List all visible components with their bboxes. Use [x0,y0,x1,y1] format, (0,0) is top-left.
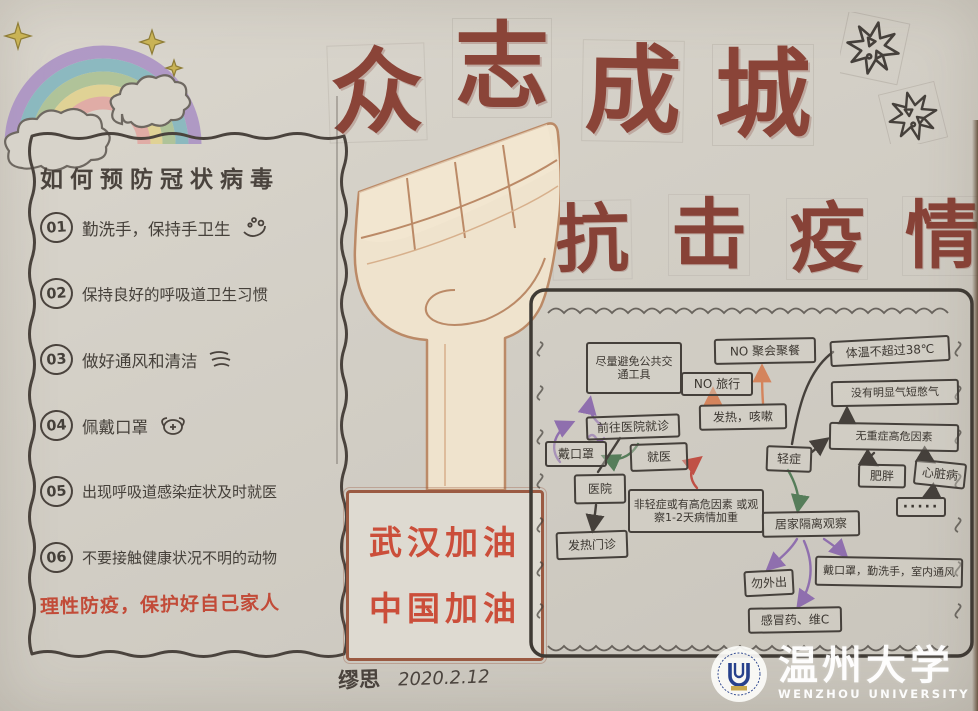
flow-node-avoid-public-transport: 尽量避免公共交通工具 [586,342,682,394]
wavy-border [24,128,352,662]
flow-node-home-isolation: 居家隔离观察 [762,510,860,538]
flow-node-no-going-out: 勿外出 [743,569,794,598]
subtitle-char: 情 [902,196,978,276]
item-number: 01 [39,211,74,244]
pencil-guide-line [336,96,338,464]
flow-node-mask-wash-ventilate: 戴口罩，勤洗手，室内通风 [815,556,964,589]
flow-node-obesity: 肥胖 [858,464,906,489]
prevention-note: 理性防疫，保护好自己家人 [40,588,280,619]
cheer-line: 武汉加油 [369,526,521,559]
watermark-name-en: WENZHOU UNIVERSITY [778,689,970,701]
item-text: 出现呼吸道感染症状及时就医 [82,481,277,502]
item-number: 05 [39,475,74,508]
wind-icon [207,349,235,371]
flow-node-ellipsis: ····· [896,497,946,517]
signature-date: 2020.2.12 [398,666,490,690]
prevention-item: 04 佩戴口罩 [40,410,340,441]
flow-node-seek-medical-care: 就医 [630,442,689,472]
flow-node-no-gathering: NO 聚会聚餐 [714,337,816,365]
virus-burst-icon [840,12,952,144]
item-text: 保持良好的呼吸道卫生习惯 [82,283,268,305]
flow-node-mild-case: 轻症 [766,445,813,473]
cheer-line: 中国加油 [369,592,521,625]
title-char: 成 [581,39,685,143]
flow-node-fever-clinic: 发热门诊 [556,530,629,560]
subtitle-char: 击 [668,194,750,276]
flow-node-fever-cough: 发热，咳嗽 [699,403,787,431]
subtitle-char: 疫 [786,198,868,280]
item-number: 03 [39,343,74,376]
cheer-box: 武汉加油 中国加油 [346,490,544,661]
flow-node-no-shortness-of-breath: 没有明显气短憋气 [831,379,959,407]
item-text: 勤洗手，保持手卫生 [82,216,231,240]
signature-author: 缪思 [338,663,381,694]
prevention-item: 06 不要接触健康状况不明的动物 [40,542,340,573]
photo-edge-shadow [972,120,978,711]
prevention-item: 03 做好通风和清洁 [40,344,340,375]
scallop-decoration [548,309,948,314]
flow-node-hospital: 医院 [574,474,627,505]
item-number: 02 [39,277,74,310]
signature: 缪思 2020.2.12 [338,659,491,694]
item-number: 06 [39,541,74,574]
subtitle-char: 抗 [551,199,632,280]
item-number: 04 [39,409,74,442]
flow-node-no-severe-risk-factor: 无重症高危因素 [829,422,959,452]
prevention-title: 如何预防冠状病毒 [40,160,280,194]
flow-node-cold-medicine: 感冒药、维C [748,606,842,634]
prevention-panel: 如何预防冠状病毒 01 勤洗手，保持手卫生 02 保持良好的呼吸道卫生习惯 03… [24,128,352,662]
item-text: 做好通风和清洁 [82,348,198,372]
flow-node-go-to-hospital: 前往医院就诊 [586,413,681,440]
seal-logo [708,643,770,705]
prevention-item: 05 出现呼吸道感染症状及时就医 [40,476,340,507]
flow-node-no-travel: NO 旅行 [681,372,753,396]
flow-node-not-mild-or-risk: 非轻症或有高危因素 或观察1-2天病情加重 [628,489,764,533]
flow-node-wear-mask: 戴口罩 [545,441,607,467]
prevention-item: 01 勤洗手，保持手卫生 [40,212,340,243]
mask-icon [157,414,189,438]
handwash-icon [240,216,270,240]
university-watermark: 温州大学 WENZHOU UNIVERSITY [708,636,978,711]
prevention-item: 02 保持良好的呼吸道卫生习惯 [40,278,340,309]
item-text: 不要接触健康状况不明的动物 [82,547,277,568]
item-text: 佩戴口罩 [82,414,148,438]
title-char: 城 [712,44,814,146]
flow-node-heart-disease: 心脏病 [913,458,967,489]
watermark-name-cn: 温州大学 [778,646,970,686]
hand-drawn-epidemic-poster: 众 志 成 城 抗 击 疫 情 如何预防冠状病毒 01 勤洗手，保持 [0,0,978,711]
